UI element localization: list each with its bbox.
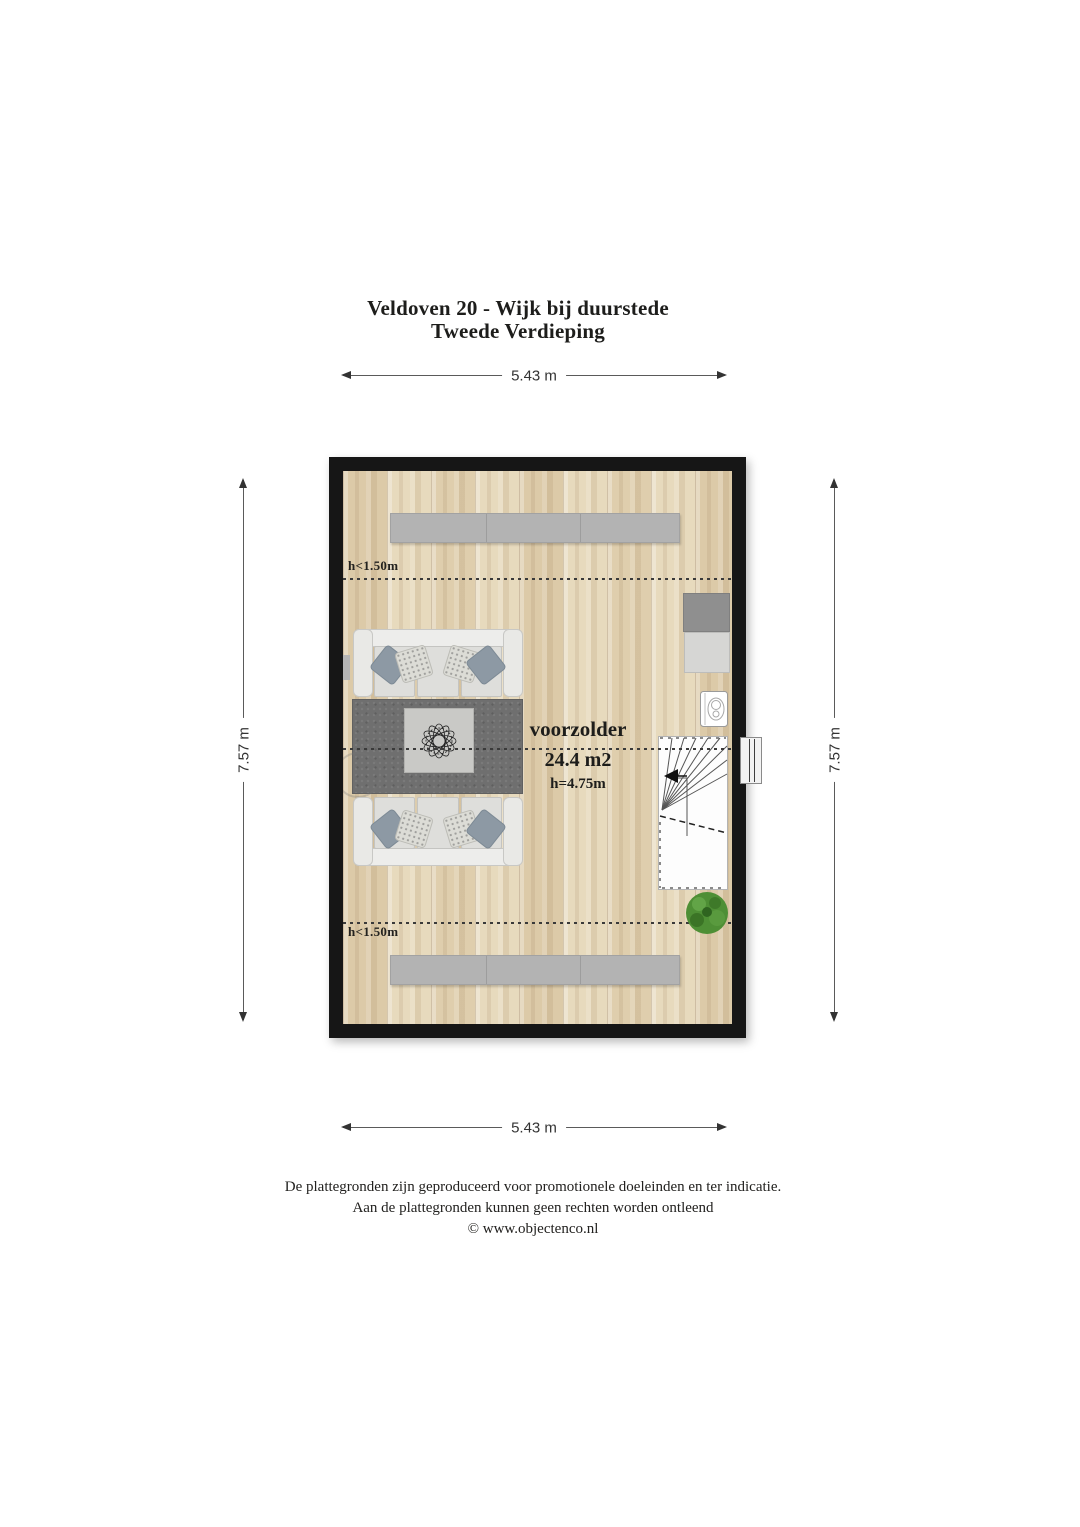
arrowhead-down-icon xyxy=(830,1012,838,1022)
height-limit-line-top xyxy=(343,578,732,580)
dimension-label: 5.43 m xyxy=(502,1119,566,1138)
room-area: 24.4 m2 xyxy=(493,748,663,772)
sofa-armrest-left xyxy=(353,629,373,697)
wall-cabinet-top xyxy=(390,513,680,543)
sofa-armrest-right xyxy=(503,629,523,697)
title-line-floor: Tweede Verdieping xyxy=(188,320,848,343)
table-ornament-icon xyxy=(416,718,462,764)
floorplan: h<1.50m h<1.50m xyxy=(329,457,746,1038)
dimension-label: 5.43 m xyxy=(502,367,566,386)
dimension-label: 7.57 m xyxy=(235,718,254,782)
dimension-right: 7.57 m xyxy=(827,478,843,1022)
dimension-bottom: 5.43 m xyxy=(341,1120,727,1136)
floor-area: h<1.50m h<1.50m xyxy=(343,471,732,1024)
arrowhead-right-icon xyxy=(717,1123,727,1131)
wall-cabinet-bottom xyxy=(390,955,680,985)
room-label: voorzolder 24.4 m2 h=4.75m xyxy=(493,717,663,793)
arrowhead-right-icon xyxy=(717,371,727,379)
plant xyxy=(684,890,730,936)
arrowhead-up-icon xyxy=(830,478,838,488)
plant-icon xyxy=(684,890,730,936)
staircase xyxy=(658,736,728,890)
dimension-left: 7.57 m xyxy=(236,478,252,1022)
disclaimer-line2: Aan de plattegronden kunnen geen rechten… xyxy=(63,1198,1003,1219)
arrowhead-left-icon xyxy=(341,1123,351,1131)
disclaimer-line1: De plattegronden zijn geproduceerd voor … xyxy=(63,1177,1003,1198)
wall-niche xyxy=(343,655,350,680)
height-limit-label-bottom: h<1.50m xyxy=(348,924,398,940)
boiler-unit xyxy=(700,691,728,727)
dimension-label: 7.57 m xyxy=(826,718,845,782)
dresser-light xyxy=(684,632,730,673)
floorplan-page: Veldoven 20 - Wijk bij duurstede Tweede … xyxy=(0,0,1080,1527)
window-glass xyxy=(749,739,755,782)
arrowhead-down-icon xyxy=(239,1012,247,1022)
room-name: voorzolder xyxy=(493,717,663,741)
sofa-armrest-left xyxy=(353,797,373,866)
page-title: Veldoven 20 - Wijk bij duurstede Tweede … xyxy=(188,297,848,343)
boiler-icon xyxy=(700,691,728,727)
room-height: h=4.75m xyxy=(493,775,663,793)
arrowhead-left-icon xyxy=(341,371,351,379)
arrowhead-up-icon xyxy=(239,478,247,488)
copyright: © www.objectenco.nl xyxy=(63,1219,1003,1240)
window-right xyxy=(740,737,762,784)
dimension-top: 5.43 m xyxy=(341,368,727,384)
sofa-top xyxy=(353,629,523,697)
sofa-bottom xyxy=(353,797,523,866)
title-line-address: Veldoven 20 - Wijk bij duurstede xyxy=(188,297,848,320)
height-limit-label-top: h<1.50m xyxy=(348,558,398,574)
sofa-backrest xyxy=(355,629,521,647)
disclaimer: De plattegronden zijn geproduceerd voor … xyxy=(63,1177,1003,1240)
sofa-backrest xyxy=(355,848,521,866)
sofa-armrest-right xyxy=(503,797,523,866)
dresser-dark xyxy=(683,593,730,632)
height-limit-line-bottom xyxy=(343,922,732,924)
coffee-table xyxy=(404,708,474,773)
